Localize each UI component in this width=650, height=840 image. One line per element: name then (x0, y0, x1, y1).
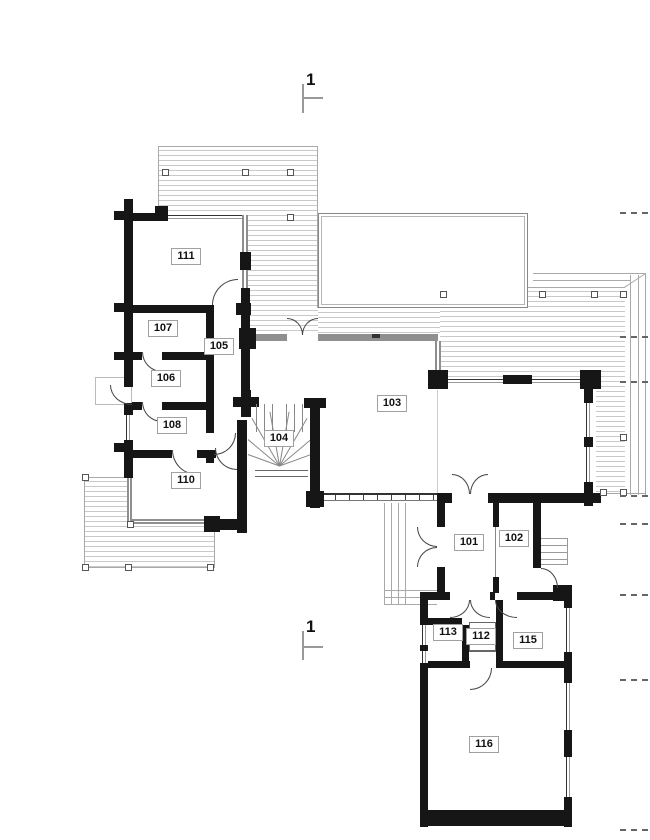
pool-inner-edge (321, 216, 525, 305)
french-door-arc (452, 474, 470, 494)
room-label-104: 104 (264, 430, 294, 447)
wall (132, 352, 142, 360)
dashed-gridline (620, 212, 648, 214)
glazed-wall (131, 519, 206, 524)
dashed-gridline (620, 679, 648, 681)
log-end (114, 443, 124, 452)
door-opening (287, 334, 318, 341)
post (428, 370, 448, 389)
room-label-108: 108 (157, 417, 187, 434)
deck-edge (158, 146, 318, 147)
deck-post (600, 489, 607, 496)
log-end (114, 303, 124, 312)
deck-post (287, 169, 294, 176)
wall (237, 420, 247, 533)
wall (564, 730, 572, 757)
wall (564, 592, 572, 608)
deck-below-pool (318, 308, 440, 337)
window (564, 683, 572, 730)
glazed-wall (127, 478, 132, 522)
room-label-116: 116 (469, 736, 499, 753)
wall (493, 577, 499, 593)
wall (437, 567, 445, 593)
deck-post (242, 169, 249, 176)
door-arc (417, 527, 437, 547)
section-marker-bottom-label: 1 (306, 618, 315, 635)
door-arc (212, 279, 238, 305)
dashed-gridline (620, 523, 648, 525)
deck-post (620, 291, 627, 298)
french-door-arc (470, 474, 488, 494)
wall (420, 592, 450, 600)
deck-right (440, 287, 625, 493)
door-arc (470, 600, 490, 618)
window (584, 403, 593, 437)
stair-tread (264, 404, 265, 432)
deck-border-line (533, 280, 630, 281)
post (240, 252, 251, 270)
side-steps (540, 538, 568, 565)
log-end (114, 352, 124, 360)
deck-post (539, 291, 546, 298)
room-label-115: 115 (513, 632, 543, 649)
wall (493, 503, 499, 527)
wall (132, 402, 142, 410)
porch-step (384, 503, 385, 604)
deck-border-line (645, 273, 646, 497)
room-label-103: 103 (377, 395, 407, 412)
wall (584, 372, 593, 403)
wall (428, 661, 470, 668)
wall (437, 493, 452, 503)
porch-step (398, 503, 399, 604)
deck-post (82, 474, 89, 481)
section-marker-bottom-line (303, 646, 323, 648)
deck-edge (158, 146, 159, 213)
deck-border-line (533, 273, 645, 274)
post (584, 437, 593, 447)
deck-border-line (630, 275, 631, 495)
wall (420, 810, 572, 826)
glazed-wall (253, 334, 438, 341)
door-arc (541, 568, 558, 588)
porch-step (391, 503, 392, 604)
log-end (124, 199, 133, 213)
post (306, 491, 324, 507)
deck-post (440, 291, 447, 298)
column-line (437, 390, 438, 493)
window (420, 651, 428, 663)
deck-post (125, 564, 132, 571)
wall (124, 440, 133, 478)
log-segment (503, 375, 532, 384)
room-label-107: 107 (148, 320, 178, 337)
room-label-101: 101 (454, 534, 484, 551)
porch-step (384, 590, 437, 591)
wall (490, 592, 495, 600)
deck-edge (84, 567, 215, 568)
log-end (114, 211, 124, 220)
dashed-gridline (620, 829, 648, 831)
wall (420, 600, 428, 620)
porch-step (384, 604, 437, 605)
dashed-gridline (620, 381, 648, 383)
mullion (372, 334, 380, 338)
deck-post (287, 214, 294, 221)
stair-tread (302, 404, 303, 432)
wall (533, 503, 541, 568)
door-arc (142, 352, 162, 372)
dashed-gridline (620, 594, 648, 596)
wall (420, 663, 428, 827)
door-arc (417, 547, 437, 567)
room-label-111: 111 (171, 248, 201, 265)
deck-post (591, 291, 598, 298)
dashed-gridline (620, 336, 648, 338)
post (420, 645, 428, 651)
glazed-wall (435, 341, 441, 373)
stair-railing (255, 470, 308, 477)
window (564, 608, 572, 652)
deck-post (127, 521, 134, 528)
deck-post (82, 564, 89, 571)
floor-plan-canvas: 101 102 103 104 105 106 107 108 110 111 … (0, 0, 650, 840)
post (239, 328, 256, 349)
window (124, 415, 133, 440)
wall (132, 305, 212, 313)
dashed-gridline (620, 495, 648, 497)
log-end (155, 206, 168, 221)
door-arc (215, 448, 237, 470)
wall (496, 661, 564, 668)
wall (564, 652, 572, 683)
deck-post (620, 434, 627, 441)
deck-border-line (638, 275, 639, 495)
window (584, 447, 593, 482)
room-label-106: 106 (151, 370, 181, 387)
window-balustrade (322, 493, 438, 501)
room-label-112: 112 (466, 628, 496, 645)
deck-post (162, 169, 169, 176)
post (236, 303, 251, 315)
window (167, 213, 244, 221)
door-arc (470, 668, 492, 690)
deck-edge (528, 287, 625, 288)
section-marker-top-line (303, 97, 323, 99)
deck-edge (84, 477, 85, 568)
door-arc (450, 600, 470, 618)
room-label-110: 110 (171, 472, 201, 489)
wall (488, 493, 601, 503)
deck-post (207, 564, 214, 571)
wall (206, 305, 214, 433)
room-label-105: 105 (204, 338, 234, 355)
stair-tread (294, 404, 295, 432)
room-label-102: 102 (499, 530, 529, 547)
wall (132, 450, 172, 458)
room-label-113: 113 (433, 624, 463, 641)
wall (437, 503, 445, 527)
pool (318, 213, 528, 308)
section-marker-top-label: 1 (306, 71, 315, 88)
partition-line (495, 527, 496, 577)
window (564, 757, 572, 797)
porch-step (405, 503, 406, 604)
